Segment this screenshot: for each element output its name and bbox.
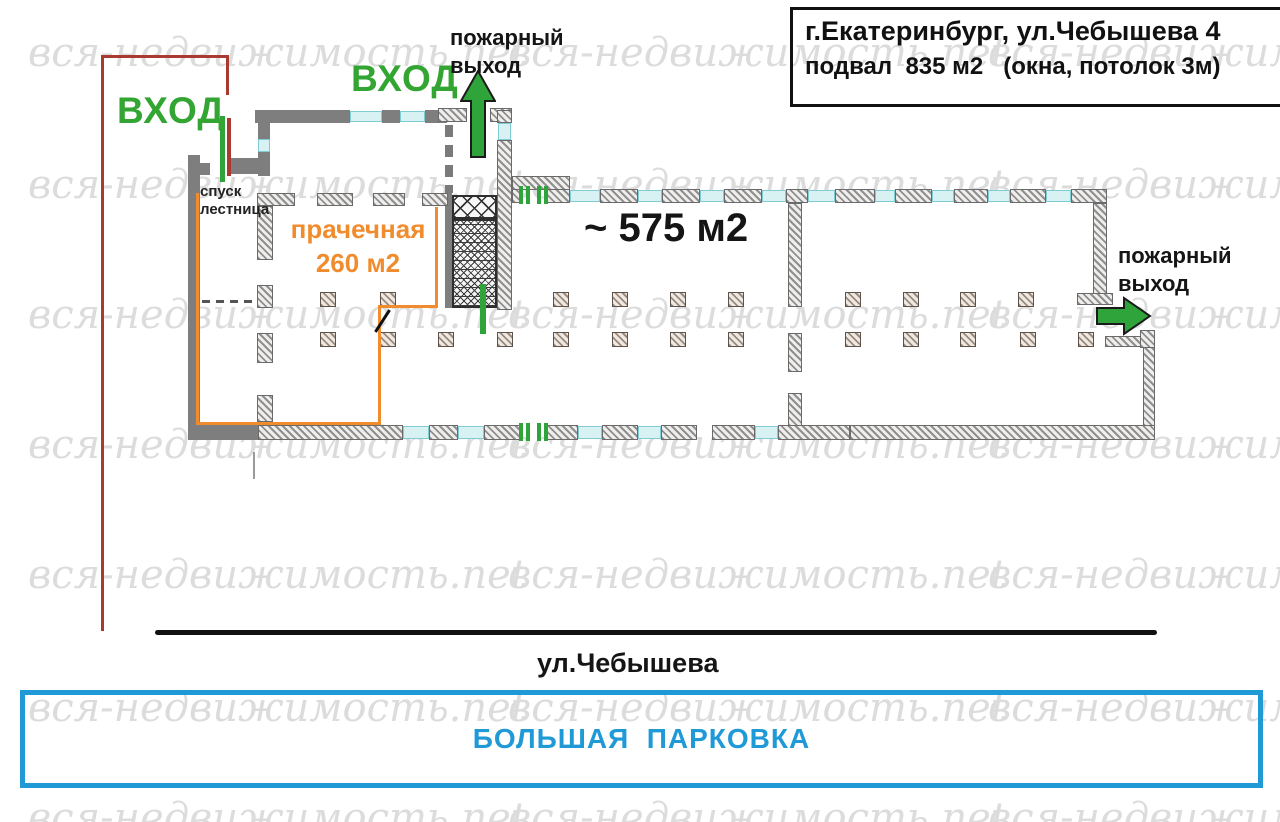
entrance-path-stub	[226, 55, 229, 95]
fire-exit-right-line2: выход	[1118, 270, 1232, 298]
annotation-layer: ВХОД ВХОД пожарный выход пожарный выход …	[0, 0, 1280, 822]
entrance-path-vertical	[101, 55, 104, 631]
stairs-line1: спуск	[200, 183, 269, 201]
parking-label: БОЛЬШАЯ ПАРКОВКА	[473, 723, 810, 755]
laundry-line2: 260 м2	[278, 246, 438, 280]
parking-box: БОЛЬШАЯ ПАРКОВКА	[20, 690, 1263, 788]
street-line	[155, 630, 1157, 635]
arrow-up-icon	[460, 70, 496, 158]
entrance-door-marker-red	[227, 118, 231, 176]
wall-tick	[253, 452, 255, 479]
address-line2: подвал 835 м2 (окна, потолок 3м)	[805, 53, 1280, 81]
stairs-line2: лестница	[200, 201, 269, 219]
entrance-label-top: ВХОД	[351, 58, 459, 100]
street-label: ул.Чебышева	[537, 648, 718, 679]
fire-exit-top-label: пожарный выход	[450, 24, 564, 80]
laundry-label: прачечная 260 м2	[278, 212, 438, 280]
stairs-direction-line	[480, 284, 486, 334]
laundry-boundary-step	[378, 305, 438, 308]
fire-exit-right-line1: пожарный	[1118, 242, 1232, 270]
door-swing-line	[374, 309, 391, 332]
address-line1: г.Екатеринбург, ул.Чебышева 4	[805, 16, 1280, 47]
laundry-line1: прачечная	[278, 212, 438, 246]
laundry-boundary-bottom	[196, 422, 380, 425]
address-box: г.Екатеринбург, ул.Чебышева 4 подвал 835…	[790, 7, 1280, 107]
fire-exit-top-line1: пожарный	[450, 24, 564, 52]
fire-exit-right-label: пожарный выход	[1118, 242, 1232, 298]
hall-area-label: ~ 575 м2	[584, 206, 748, 251]
arrow-right-icon	[1096, 296, 1152, 336]
floor-plan-page: вся-недвижимость.netвся-недвижимость.net…	[0, 0, 1280, 822]
laundry-boundary-left	[196, 193, 199, 425]
entrance-path-horizontal	[101, 55, 229, 58]
entrance-label-left: ВХОД	[117, 90, 225, 132]
stairs-label: спуск лестница	[200, 183, 269, 219]
fire-exit-top-line2: выход	[450, 52, 564, 80]
